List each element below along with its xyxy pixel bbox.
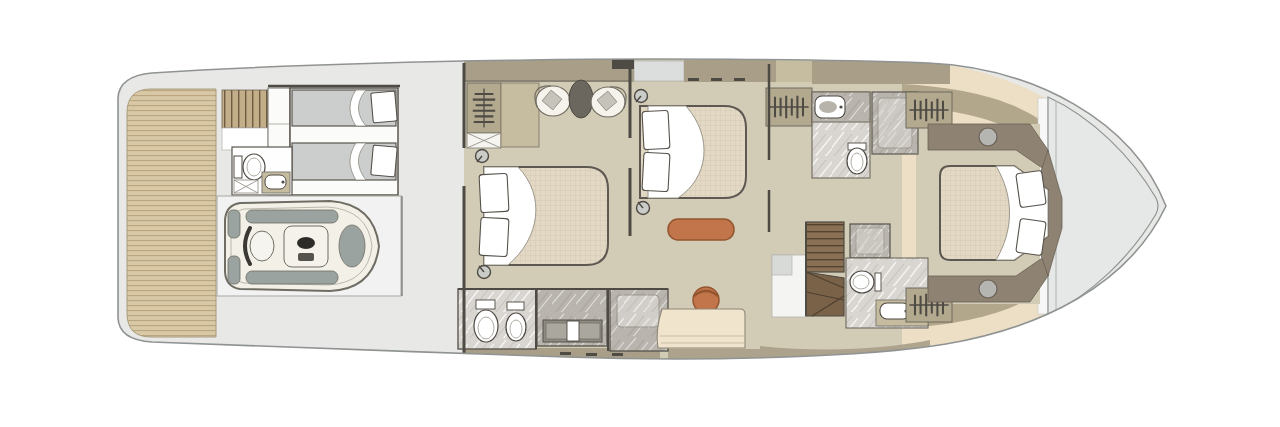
locker (234, 180, 258, 193)
floor-plan-svg (0, 0, 1280, 427)
crew-berth-lower (292, 143, 397, 180)
vip-double-bed (940, 166, 1048, 260)
pillow (1016, 218, 1046, 255)
yacht-floor-plan-canvas (0, 0, 1280, 427)
pouf-table (569, 80, 593, 118)
master-wardrobe (766, 88, 812, 126)
pillow (479, 173, 509, 212)
luggage-rack (467, 133, 501, 148)
console-lamp (979, 128, 997, 146)
pillow (642, 110, 670, 149)
crew-cabin (290, 88, 398, 195)
foot-bench (668, 219, 734, 240)
washbasin (815, 96, 845, 118)
toilet (474, 300, 498, 342)
console-lamp (979, 280, 997, 298)
pillow (479, 217, 509, 256)
toilet (234, 154, 265, 180)
swim-platform (127, 89, 216, 337)
guest-cabin-mid (467, 80, 626, 279)
console-screen (297, 237, 315, 249)
pillow (642, 152, 670, 191)
aft-stairs (222, 90, 268, 150)
bidet (506, 302, 526, 341)
toilet (847, 143, 867, 174)
dresser (501, 83, 539, 147)
personal-watercraft (225, 201, 379, 291)
toilet (850, 271, 881, 293)
crew-bathroom (232, 147, 292, 195)
master-double-bed (640, 106, 746, 198)
vanity (537, 289, 607, 346)
guest-bathroom (458, 289, 668, 351)
seat (250, 231, 274, 261)
pillow (1016, 170, 1046, 207)
washbasin (262, 172, 290, 193)
armchair-right (591, 87, 626, 117)
shower-box-mid (850, 224, 890, 258)
sofa (657, 309, 745, 348)
pillow (371, 145, 398, 177)
guest-double-bed (479, 167, 608, 265)
pillow (371, 91, 398, 123)
armchair-left (535, 86, 570, 116)
crew-berth-upper (292, 90, 397, 126)
wardrobe (467, 83, 501, 133)
tender-garage (217, 196, 401, 296)
basin (567, 321, 579, 341)
